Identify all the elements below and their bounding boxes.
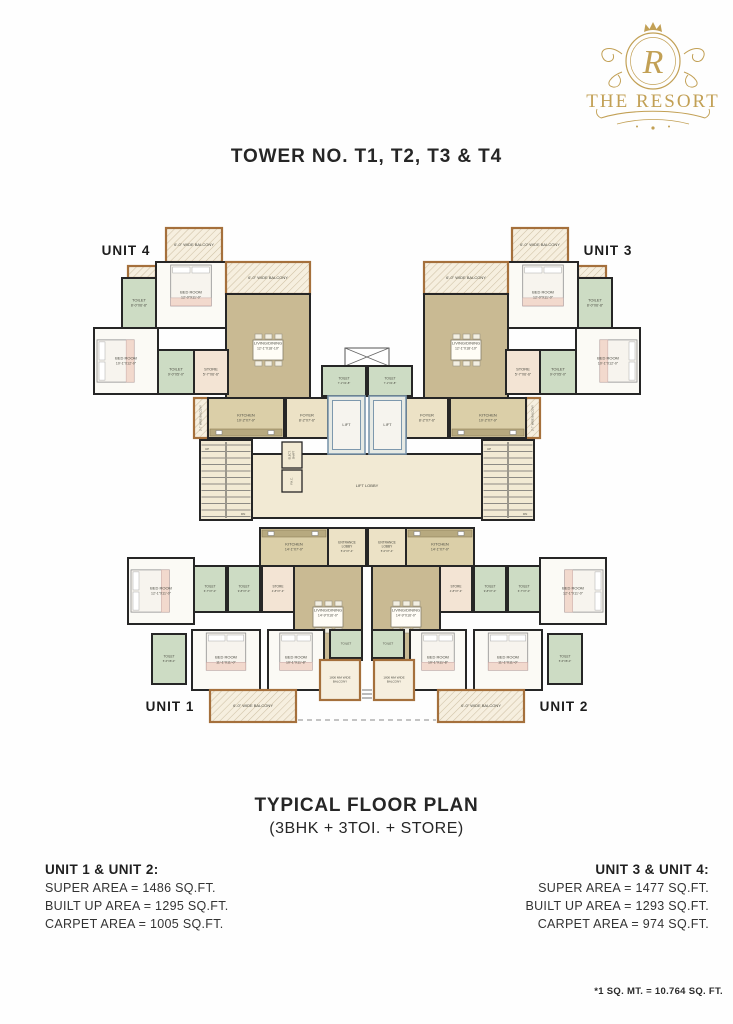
brochure-page: R THE RESORT TOWER NO. T1, T2, T3 & T4 6… [0,0,733,1024]
room-label: ELECT.SHAFT [288,450,296,459]
room-toilet: TOILET5'-6"X8'-0" [152,634,186,684]
room-toilet: TOILET9'-0"X5'-0" [158,350,194,394]
room-kitchen: KITCHEN10'-2"X7'-9" [450,398,526,438]
unit-label-unit-4: UNIT 4 [102,243,151,258]
room-toilet: TOILET6'-7"X7'-0" [194,566,226,612]
unit34-builtup-area: BUILT UP AREA = 1293 SQ.FT. [525,898,709,916]
room-label: TOILET [383,642,394,646]
stair-dn-label: DN [523,512,527,516]
room-foyer: FOYER8'-2"X7'-6" [406,398,448,438]
logo-monogram: R [642,44,664,81]
resort-logo-art: R THE RESORT [577,18,729,142]
floor-plan: 6'-0" WIDE BALCONY6'-0" WIDE BALCONYBED … [82,222,652,732]
room-foyer: FOYER8'-2"X7'-6" [286,398,328,438]
floor-plan-root: 6'-0" WIDE BALCONY6'-0" WIDE BALCONYBED … [94,228,640,722]
room-label: 6'-0" WIDE BALCONY [174,242,214,247]
resort-logo: R THE RESORT [577,18,729,142]
room-living-dining: LIVING/DINING12'-1"X18'-10" [424,294,508,398]
room-living-dining: LIVING/DINING12'-1"X18'-10" [226,294,310,398]
room-2-7-wide-balcony: 2'-7" WIDE BALCONY [526,398,540,438]
room-2-7-wide-balcony: 2'-7" WIDE BALCONY [194,398,208,438]
room-kitchen: KITCHEN14'-1"X7'-0" [406,528,474,566]
stair-up-label: UP [205,447,209,451]
room-bed-room: BED ROOM10'-1"X12'-0" [576,328,640,394]
room-6-0-wide-balcony: 6'-0" WIDE BALCONY [166,228,222,262]
room-label: 6'-0" WIDE BALCONY [461,703,501,708]
room-label: 2'-7" WIDE BALCONY [530,405,534,431]
unit34-areas: UNIT 3 & UNIT 4: SUPER AREA = 1477 SQ.FT… [525,862,709,933]
room-bed-room: BED ROOM11'-1"X11'-0" [474,630,542,690]
room-label: LIFT [342,422,351,427]
room-toilet: TOILET9'-8"X7'-0" [228,566,260,612]
room-label: LIFT LOBBY [356,483,379,488]
room-6-0-wide-balcony: 6'-0" WIDE BALCONY [438,690,524,722]
room-store: STORE4'-8"X7'-3" [440,566,472,612]
logo-wordmark: THE RESORT [586,91,719,112]
room-bed-room: BED ROOM11'-1"X11'-0" [192,630,260,690]
room-toilet: TOILET9'-0"X5'-0" [540,350,576,394]
room-lift: LIFT [328,396,365,454]
unit-label-unit-1: UNIT 1 [146,699,195,714]
caption-line2: (3BHK + 3TOI. + STORE) [0,820,733,838]
room-toilet: TOILET8'-0"X6'-8" [578,278,612,328]
room-1800-mm-wide-balcony: 1800 MM WIDEBALCONY [374,660,414,700]
conversion-footnote: *1 SQ. MT. = 10.764 SQ. FT. [594,986,723,997]
unit34-heading: UNIT 3 & UNIT 4: [525,862,709,877]
room-label: LIFT [383,422,392,427]
unit-label-unit-2: UNIT 2 [540,699,589,714]
room-stair: UPDN [200,440,252,520]
room-toilet: TOILET9'-8"X7'-0" [474,566,506,612]
room-label: TOILET [341,642,352,646]
unit12-builtup-area: BUILT UP AREA = 1295 SQ.FT. [45,898,229,916]
room-toilet: TOILET7'-1"X4'-8" [368,366,412,396]
room-6-0-wide-balcony: 6'-0" WIDE BALCONY [210,690,296,722]
room-stair: UPDN [482,440,534,520]
entrance-steps [362,690,372,698]
room-bed-room: BED ROOM12'-1"X11'-0" [540,558,606,624]
crown-icon [644,22,662,32]
room-toilet: TOILET [330,630,362,658]
room-lift: LIFT [369,396,406,454]
room-label: F.H.C. [289,477,293,484]
room-label: 6'-0" WIDE BALCONY [446,275,486,280]
room-label: 6'-0" WIDE BALCONY [520,242,560,247]
unit12-carpet-area: CARPET AREA = 1005 SQ.FT. [45,916,229,934]
room-label: 2'-7" WIDE BALCONY [198,405,202,431]
room-label: 6'-0" WIDE BALCONY [233,703,273,708]
room-6-0-wide-balcony: 6'-0" WIDE BALCONY [226,262,310,294]
room-entrance-lobby: ENTRANCELOBBY5'-0"X7'-4" [328,528,366,566]
room-1800-mm-wide-balcony: 1800 MM WIDEBALCONY [320,660,360,700]
caption-line1: TYPICAL FLOOR PLAN [0,795,733,817]
room-bed-room: BED ROOM12'-0"X11'-0" [508,262,578,328]
room-bed-room: BED ROOM10'-1"X12'-0" [94,328,158,394]
room-store: STORE5'-7"X6'-6" [506,350,540,394]
room-balcony [578,266,606,278]
page-title: TOWER NO. T1, T2, T3 & T4 [0,146,733,168]
room-toilet: TOILET6'-7"X7'-0" [508,566,540,612]
room-entrance-lobby: ENTRANCELOBBY5'-0"X7'-4" [368,528,406,566]
room-balcony [128,266,156,278]
room-6-0-wide-balcony: 6'-0" WIDE BALCONY [424,262,508,294]
room-store: STORE4'-8"X7'-3" [262,566,294,612]
room-kitchen: KITCHEN10'-2"X7'-9" [208,398,284,438]
room-toilet: TOILET5'-6"X8'-0" [548,634,582,684]
unit12-super-area: SUPER AREA = 1486 SQ.FT. [45,880,229,898]
room-bed-room: BED ROOM12'-1"X11'-0" [128,558,194,624]
unit34-super-area: SUPER AREA = 1477 SQ.FT. [525,880,709,898]
room-duct [345,348,389,366]
room-toilet: TOILET7'-1"X4'-8" [322,366,366,396]
room-bed-room: BED ROOM10'-1"X11'-8" [268,630,324,690]
room-f-h-c: F.H.C. [282,470,302,492]
plan-caption: TYPICAL FLOOR PLAN (3BHK + 3TOI. + STORE… [0,795,733,838]
room-toilet: TOILET [372,630,404,658]
room-6-0-wide-balcony: 6'-0" WIDE BALCONY [512,228,568,262]
room-store: STORE5'-7"X6'-6" [194,350,228,394]
unit-label-unit-3: UNIT 3 [584,243,633,258]
room-bed-room: BED ROOM10'-1"X11'-8" [410,630,466,690]
stair-up-label: UP [487,447,491,451]
room-bed-room: BED ROOM12'-0"X11'-0" [156,262,226,328]
stair-dn-label: DN [241,512,245,516]
room-label: 6'-0" WIDE BALCONY [248,275,288,280]
unit12-heading: UNIT 1 & UNIT 2: [45,862,229,877]
unit34-carpet-area: CARPET AREA = 974 SQ.FT. [525,916,709,934]
room-toilet: TOILET8'-0"X6'-8" [122,278,156,328]
unit12-areas: UNIT 1 & UNIT 2: SUPER AREA = 1486 SQ.FT… [45,862,229,933]
room-kitchen: KITCHEN14'-1"X7'-0" [260,528,328,566]
room-elect-shaft: ELECT.SHAFT [282,442,302,468]
